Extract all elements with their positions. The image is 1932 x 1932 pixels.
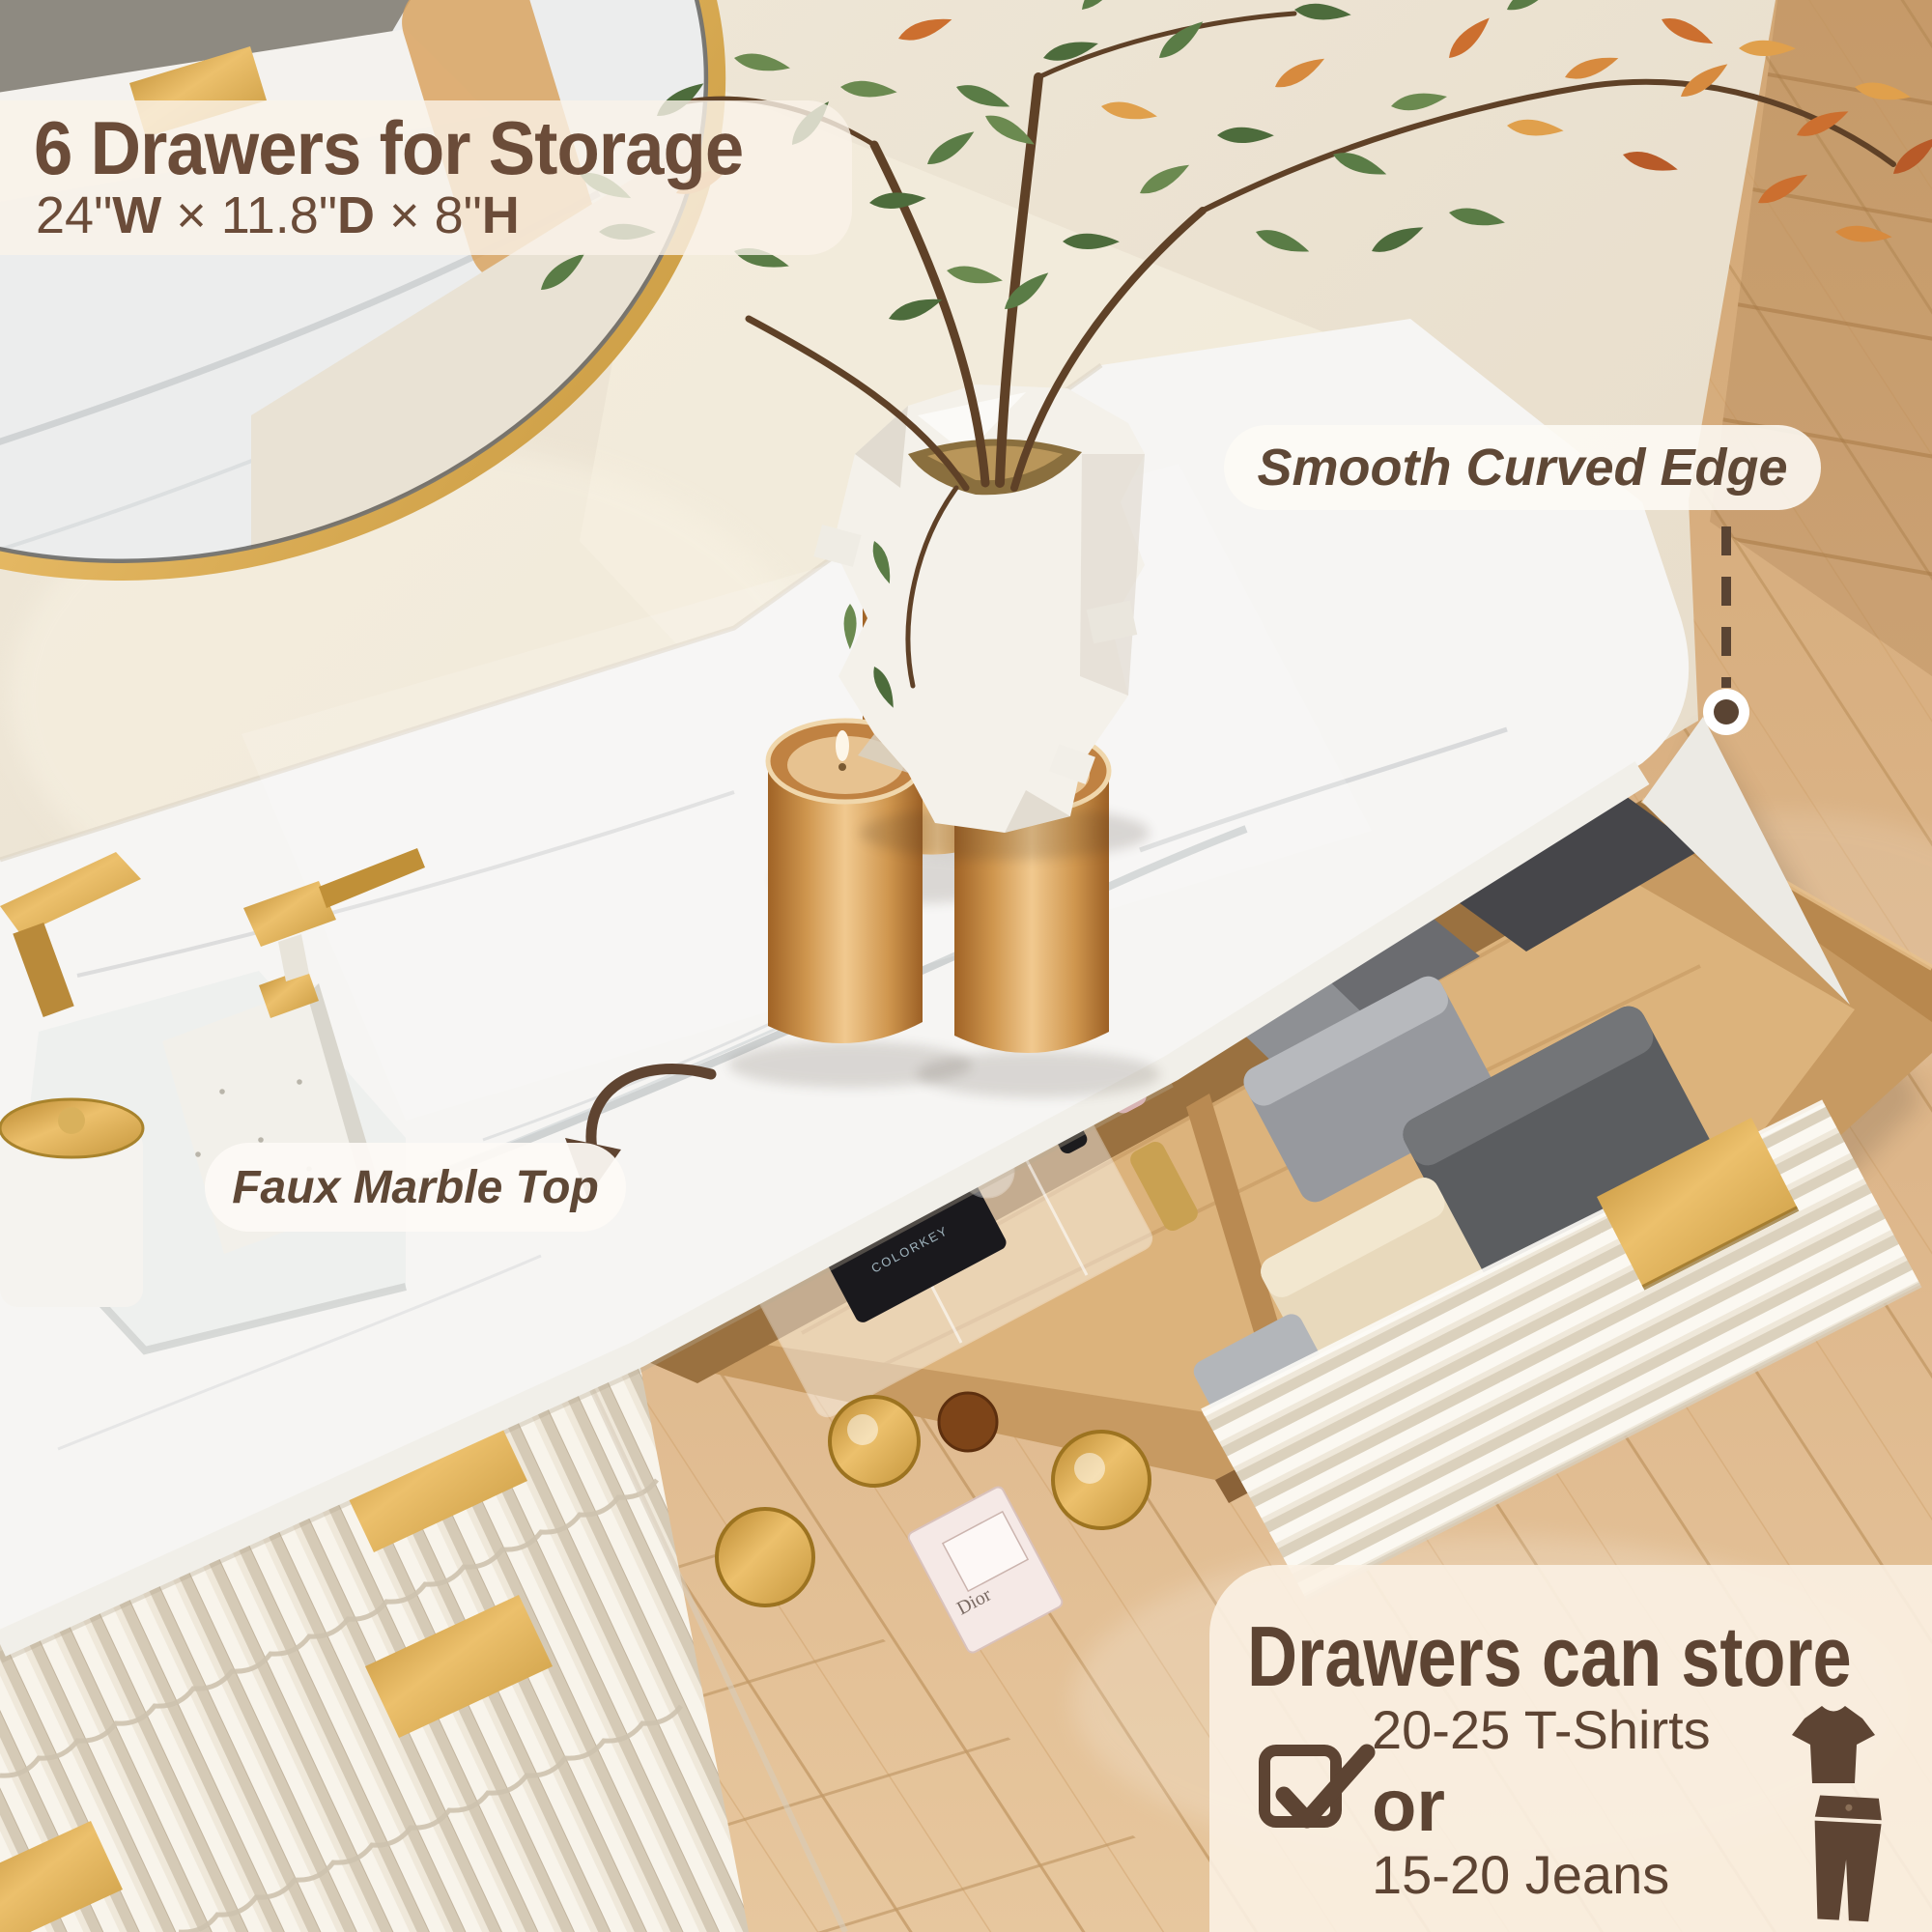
- storage-option-tshirts: 20-25 T-Shirts: [1372, 1698, 1711, 1761]
- tshirt-icon: [1785, 1700, 1882, 1794]
- pointer-dot: [1714, 699, 1739, 724]
- callout-label: Faux Marble Top: [232, 1161, 599, 1214]
- checkbox-checked-icon: [1259, 1745, 1342, 1828]
- storage-option-jeans: 15-20 Jeans: [1372, 1843, 1669, 1906]
- round-jar: [0, 1099, 143, 1307]
- page-title: 6 Drawers for Storage: [34, 104, 743, 192]
- storage-panel-title: Drawers can store: [1247, 1607, 1852, 1706]
- storage-capacity-panel: Drawers can store 20-25 T-Shirts or 15-2…: [1209, 1565, 1932, 1932]
- callout-label: Smooth Curved Edge: [1257, 438, 1787, 497]
- title-panel: 6 Drawers for Storage 24"W × 11.8"D × 8"…: [0, 100, 852, 255]
- product-dimensions: 24"W × 11.8"D × 8"H: [36, 185, 520, 245]
- product-infographic: Spark COLORKEY Dior: [0, 0, 1932, 1932]
- candle-flame: [836, 730, 849, 761]
- callout-smooth-curved-edge: Smooth Curved Edge: [1224, 425, 1821, 510]
- jeans-icon: [1803, 1793, 1889, 1929]
- callout-faux-marble-top: Faux Marble Top: [205, 1143, 626, 1232]
